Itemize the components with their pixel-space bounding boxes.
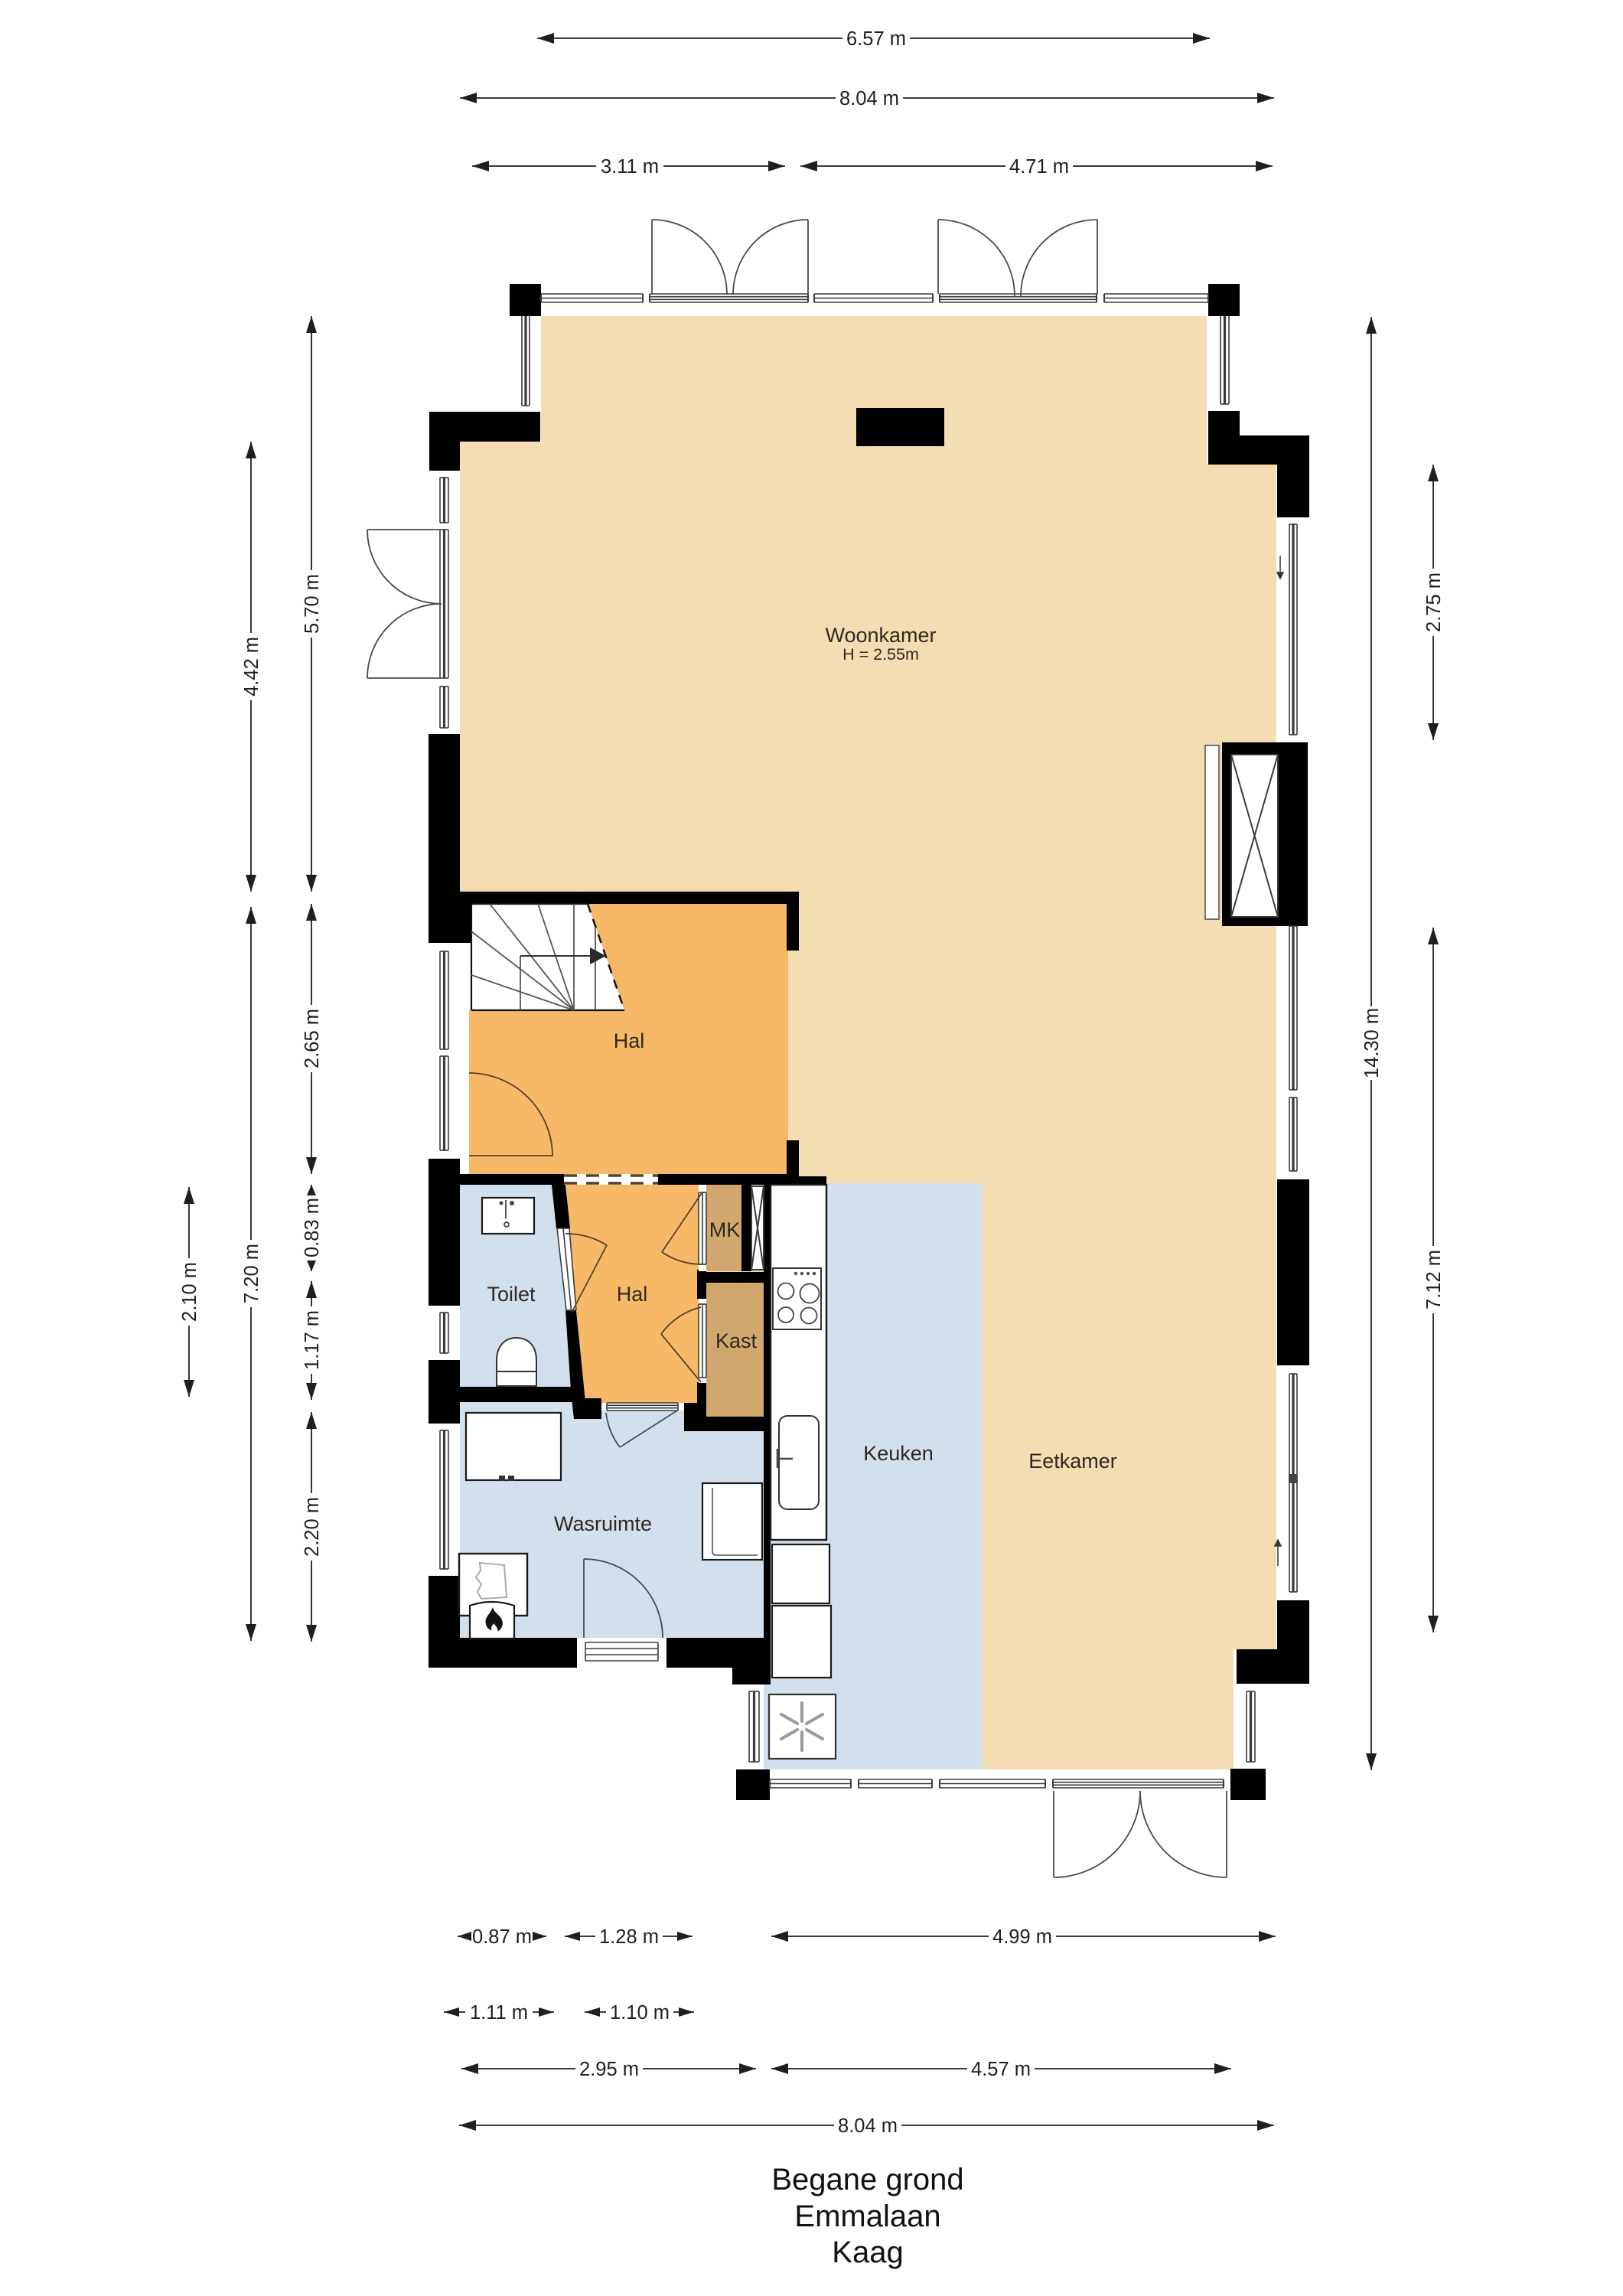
svg-text:Hal: Hal [617, 1283, 648, 1306]
svg-text:2.20 m: 2.20 m [301, 1497, 323, 1557]
svg-text:4.42 m: 4.42 m [241, 637, 262, 696]
svg-text:1.10 m: 1.10 m [610, 2002, 670, 2024]
svg-text:7.12 m: 7.12 m [1423, 1250, 1445, 1309]
svg-text:Emmalaan: Emmalaan [794, 2200, 940, 2233]
svg-text:4.99 m: 4.99 m [992, 1926, 1052, 1948]
svg-text:2.10 m: 2.10 m [179, 1262, 200, 1322]
svg-text:Kast: Kast [715, 1329, 758, 1352]
svg-text:8.04 m: 8.04 m [838, 2115, 898, 2137]
svg-text:0.87 m: 0.87 m [472, 1926, 532, 1948]
svg-text:Hal: Hal [614, 1029, 645, 1052]
svg-text:7.20 m: 7.20 m [241, 1244, 262, 1303]
svg-text:Wasruimte: Wasruimte [554, 1512, 652, 1535]
svg-text:2.75 m: 2.75 m [1423, 572, 1445, 632]
svg-text:Toilet: Toilet [487, 1283, 536, 1306]
svg-text:4.71 m: 4.71 m [1009, 156, 1069, 178]
svg-text:2.95 m: 2.95 m [579, 2059, 639, 2080]
svg-text:14.30 m: 14.30 m [1361, 1008, 1383, 1078]
svg-text:4.57 m: 4.57 m [971, 2059, 1031, 2080]
svg-text:H = 2.55m: H = 2.55m [842, 645, 919, 664]
svg-text:MK: MK [709, 1218, 741, 1241]
svg-text:Woonkamer: Woonkamer [825, 624, 936, 647]
svg-text:1.11 m: 1.11 m [470, 2002, 528, 2024]
svg-text:3.11 m: 3.11 m [601, 156, 659, 178]
svg-text:1.17 m: 1.17 m [301, 1310, 323, 1370]
svg-text:5.70 m: 5.70 m [301, 574, 323, 634]
svg-text:8.04 m: 8.04 m [839, 88, 899, 109]
svg-text:Keuken: Keuken [863, 1442, 934, 1465]
svg-text:2.65 m: 2.65 m [301, 1009, 323, 1068]
svg-text:6.57 m: 6.57 m [846, 28, 906, 50]
svg-text:Begane grond: Begane grond [771, 2163, 963, 2197]
svg-text:0.83 m: 0.83 m [301, 1198, 323, 1257]
svg-text:Eetkamer: Eetkamer [1028, 1450, 1117, 1473]
svg-text:1.28 m: 1.28 m [599, 1926, 659, 1948]
svg-text:Kaag: Kaag [832, 2236, 903, 2269]
